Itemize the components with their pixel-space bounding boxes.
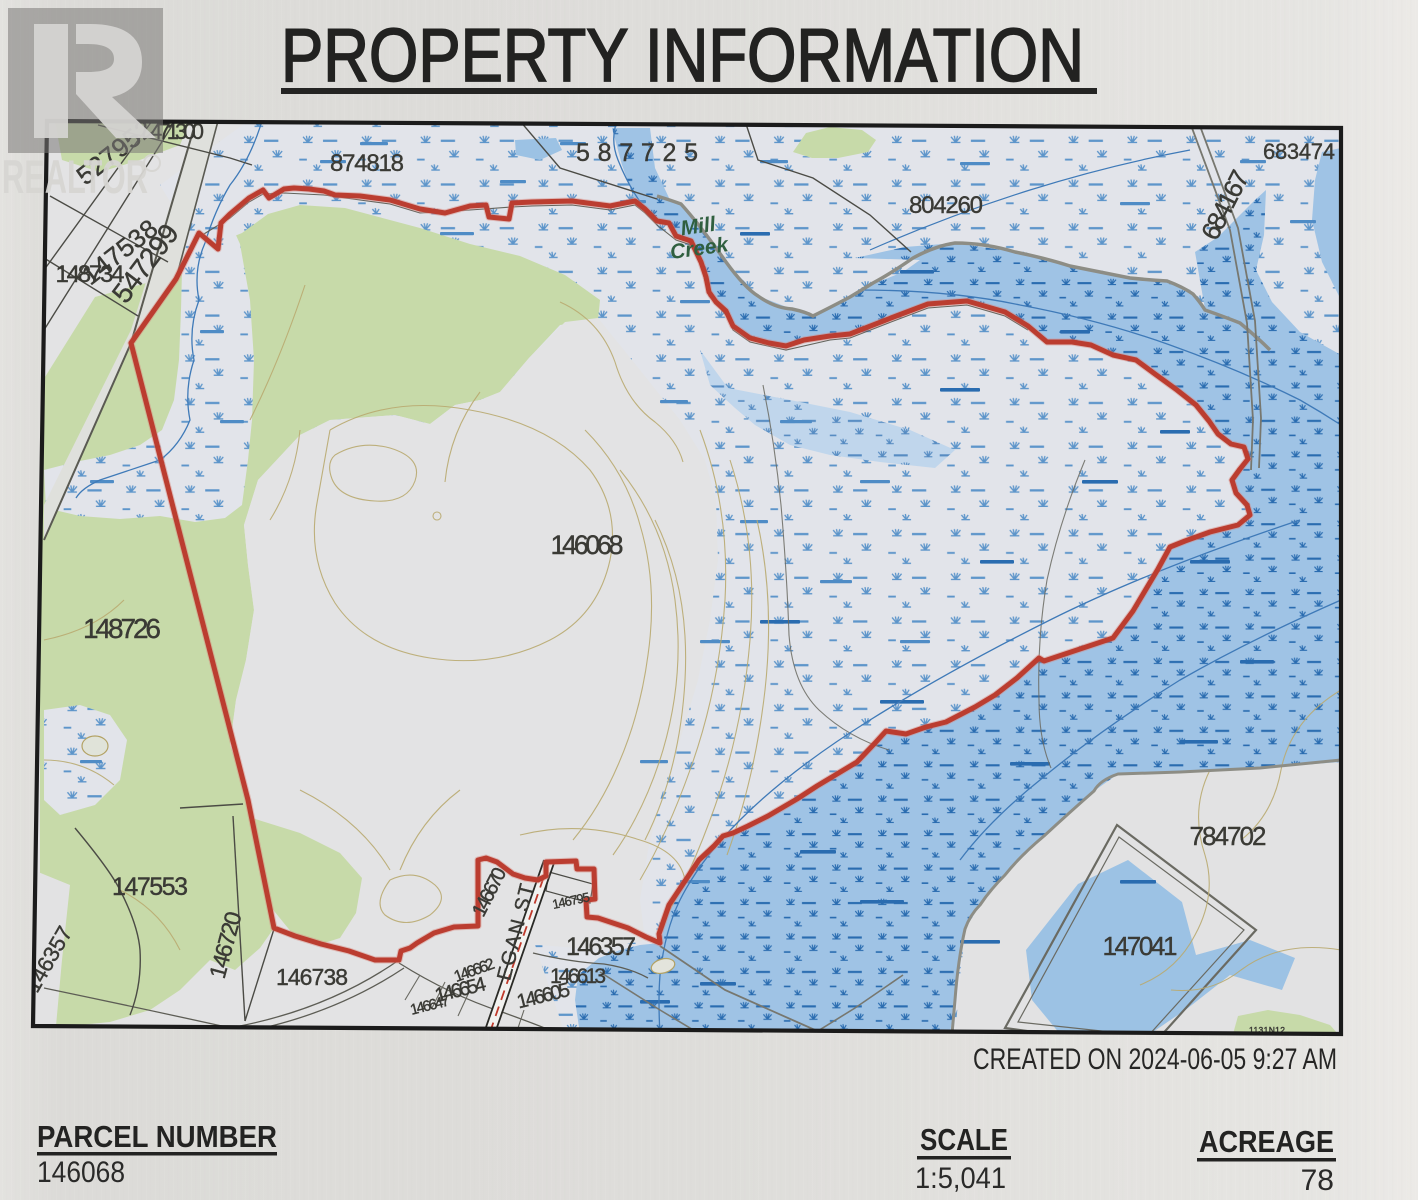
svg-text:146068: 146068 (37, 1156, 125, 1189)
svg-text:804260: 804260 (909, 192, 983, 219)
svg-text:874818: 874818 (330, 150, 404, 177)
svg-text:683474: 683474 (1263, 139, 1335, 164)
svg-text:147553: 147553 (112, 873, 188, 901)
svg-text:146738: 146738 (276, 964, 348, 990)
svg-text:1:5,041: 1:5,041 (915, 1162, 1006, 1195)
svg-text:148726: 148726 (83, 613, 161, 644)
svg-text:784702: 784702 (1190, 821, 1267, 851)
svg-text:ACREAGE: ACREAGE (1199, 1124, 1334, 1159)
svg-text:CREATED ON 2024-06-05 9:27 AM: CREATED ON 2024-06-05 9:27 AM (973, 1043, 1337, 1076)
svg-text:PROPERTY INFORMATION: PROPERTY INFORMATION (281, 13, 1084, 97)
svg-text:147041: 147041 (1103, 931, 1178, 961)
svg-text:SCALE: SCALE (920, 1122, 1008, 1157)
svg-text:146357: 146357 (566, 933, 636, 961)
svg-text:78: 78 (1301, 1164, 1334, 1197)
svg-text:146068: 146068 (551, 530, 624, 560)
svg-text:REALTOR: REALTOR (2, 150, 148, 203)
svg-text:PARCEL NUMBER: PARCEL NUMBER (37, 1119, 277, 1154)
